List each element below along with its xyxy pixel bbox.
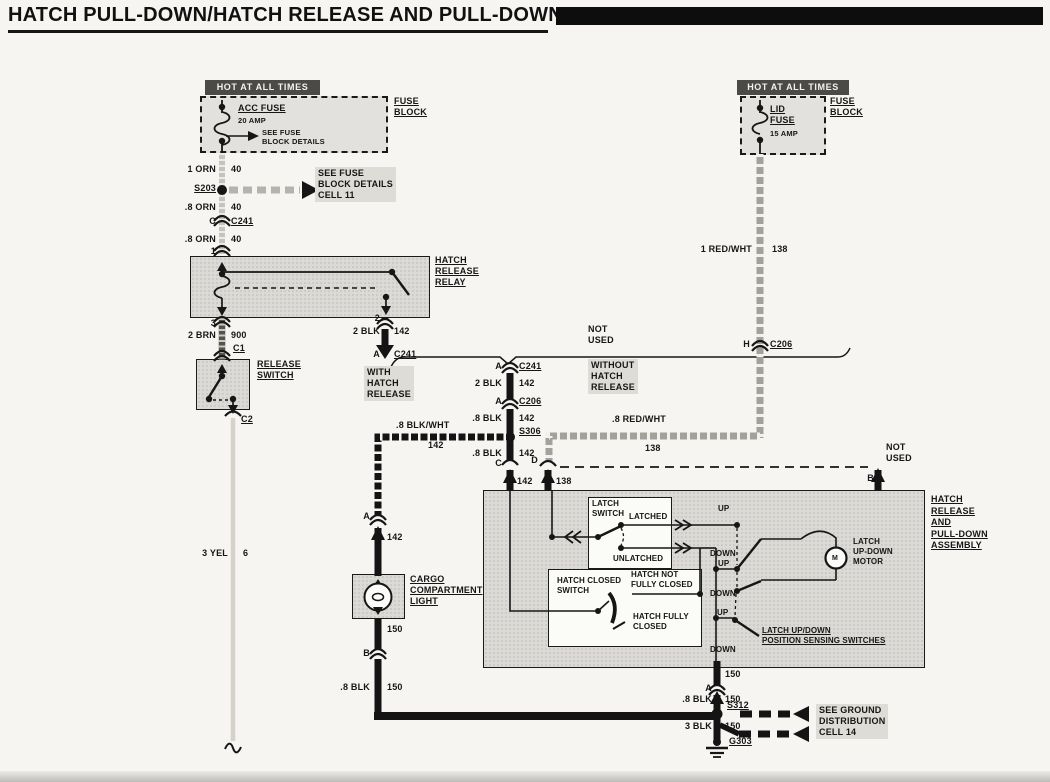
- circuit-138-b: 138: [645, 443, 661, 454]
- up-label-2: UP: [718, 559, 729, 569]
- release-switch-label: RELEASE SWITCH: [257, 359, 301, 381]
- circuit-142-b: 142: [519, 378, 535, 389]
- acc-fuse-label: ACC FUSE: [238, 103, 286, 114]
- wire-8redwht: .8 RED/WHT: [612, 414, 666, 425]
- not-used-top-note: NOT USED: [588, 324, 614, 346]
- splice-s203: S203: [156, 183, 216, 194]
- assembly-label: HATCH RELEASE AND PULL-DOWN ASSEMBLY: [931, 494, 988, 552]
- labels-layer: HOT AT ALL TIMES ACC FUSE 20 AMP SEE FUS…: [0, 0, 1050, 782]
- circuit-150-e: 150: [725, 721, 741, 732]
- wire-3blk: 3 BLK: [652, 721, 712, 732]
- acc-fuse-rating: 20 AMP: [238, 116, 266, 125]
- lid-fuse-label: LID FUSE: [770, 104, 795, 126]
- cargo-compartment-light-label: CARGO COMPARTMENT LIGHT: [410, 574, 483, 607]
- down-label-3: DOWN: [710, 645, 736, 655]
- circuit-142-a: 142: [394, 326, 410, 337]
- hatch-not-fully-closed-label: HATCH NOT FULLY CLOSED: [631, 570, 693, 590]
- terminal-a2: A: [442, 361, 502, 372]
- up-label-1: UP: [718, 504, 729, 514]
- connector-c241-label: C241: [231, 216, 253, 227]
- relay-terminal-1: 1: [156, 246, 216, 257]
- see-ground-distribution-note: SEE GROUND DISTRIBUTION CELL 14: [816, 704, 888, 739]
- circuit-150-b: 150: [387, 682, 403, 693]
- ground-g303-label: G303: [729, 736, 752, 747]
- wire-2blk-a: 2 BLK: [320, 326, 380, 337]
- hatch-closed-switch-label: HATCH CLOSED SWITCH: [557, 576, 621, 596]
- terminal-b-label: B: [814, 473, 874, 484]
- down-label-1: DOWN: [710, 549, 736, 559]
- latch-up-down-motor-label: LATCH UP-DOWN MOTOR: [853, 537, 893, 567]
- fuse-block-label-right: FUSE BLOCK: [830, 96, 863, 118]
- circuit-142-g: 142: [387, 532, 403, 543]
- wire-8orn-a: .8 ORN: [156, 202, 216, 213]
- connector-c2-label: C2: [241, 414, 253, 425]
- circuit-142-c: 142: [519, 413, 535, 424]
- acc-fuse-note: SEE FUSE BLOCK DETAILS: [262, 128, 325, 146]
- circuit-150-c: 150: [725, 669, 741, 680]
- without-hatch-release-note: WITHOUT HATCH RELEASE: [588, 359, 638, 394]
- circuit-142-e: 142: [517, 476, 533, 487]
- fuse-block-label-left: FUSE BLOCK: [394, 96, 427, 118]
- hot-at-all-times-left: HOT AT ALL TIMES: [205, 80, 320, 95]
- circuit-40-b: 40: [231, 202, 241, 213]
- wire-2blk-b: 2 BLK: [442, 378, 502, 389]
- unlatched-label: UNLATCHED: [613, 554, 663, 564]
- terminal-d-label: D: [478, 455, 538, 466]
- with-hatch-release-note: WITH HATCH RELEASE: [364, 366, 414, 401]
- circuit-142-f: 142: [428, 440, 444, 451]
- circuit-900: 900: [231, 330, 247, 341]
- terminal-a3: A: [442, 396, 502, 407]
- not-used-right-note: NOT USED: [886, 442, 912, 464]
- connector-c241c-label: C241: [519, 361, 541, 372]
- hot-at-all-times-right: HOT AT ALL TIMES: [737, 80, 849, 95]
- wire-1orn: 1 ORN: [156, 164, 216, 175]
- up-label-3: UP: [717, 608, 728, 618]
- hatch-fully-closed-label: HATCH FULLY CLOSED: [633, 612, 689, 632]
- wire-8orn-b: .8 ORN: [156, 234, 216, 245]
- relay-terminal-2: 2: [320, 313, 380, 324]
- connector-c206-label: C206: [519, 396, 541, 407]
- wire-3yel: 3 YEL: [168, 548, 228, 559]
- connector-c241b-label: C241: [394, 349, 416, 360]
- circuit-138-a: 138: [772, 244, 788, 255]
- lid-fuse-rating: 15 AMP: [770, 129, 798, 138]
- relay-terminal-3: 3: [156, 318, 216, 329]
- circuit-138-c: 138: [556, 476, 572, 487]
- wire-8blkwht: .8 BLK/WHT: [396, 420, 450, 431]
- wire-2brn: 2 BRN: [156, 330, 216, 341]
- motor-m-glyph: M: [832, 553, 838, 564]
- wiring-diagram-page: HATCH PULL-DOWN/HATCH RELEASE AND PULL-D…: [0, 0, 1050, 782]
- see-fuse-block-cell11-note: SEE FUSE BLOCK DETAILS CELL 11: [315, 167, 396, 202]
- wire-1redwht: 1 RED/WHT: [692, 244, 752, 255]
- terminal-c-c241: C: [156, 216, 216, 227]
- connector-c1-label: C1: [233, 343, 245, 354]
- scan-artifact-band: [0, 771, 1050, 782]
- wire-8blk-d: .8 BLK: [652, 694, 712, 705]
- terminal-a-cargo: A: [310, 511, 370, 522]
- terminal-h: H: [690, 339, 750, 350]
- down-label-2: DOWN: [710, 589, 736, 599]
- terminal-b-cargo: B: [310, 648, 370, 659]
- position-sensing-switches-label: LATCH UP/DOWN POSITION SENSING SWITCHES: [762, 626, 885, 646]
- latched-label: LATCHED: [629, 512, 667, 522]
- terminal-a-c241: A: [320, 349, 380, 360]
- wire-8blk-c: .8 BLK: [310, 682, 370, 693]
- connector-c206b-label: C206: [770, 339, 792, 350]
- latch-switch-label: LATCH SWITCH: [592, 499, 624, 519]
- circuit-40-c: 40: [231, 234, 241, 245]
- splice-s306: S306: [519, 426, 541, 437]
- terminal-a-ground: A: [652, 683, 712, 694]
- hatch-release-relay-label: HATCH RELEASE RELAY: [435, 255, 479, 288]
- circuit-40-a: 40: [231, 164, 241, 175]
- splice-s312: S312: [727, 700, 749, 711]
- wire-8blk-a: .8 BLK: [442, 413, 502, 424]
- circuit-150-a: 150: [387, 624, 403, 635]
- circuit-6: 6: [243, 548, 248, 559]
